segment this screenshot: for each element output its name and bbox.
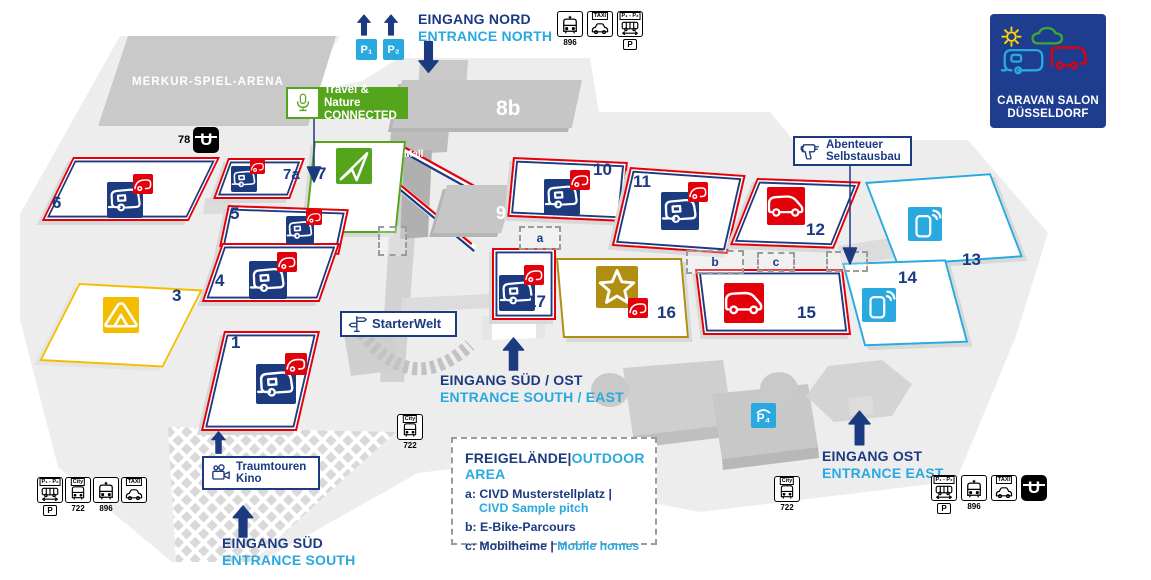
legend-item-b: b: E-Bike-Parcours: [465, 520, 655, 534]
entrance-south-de: EINGANG SÜD: [222, 535, 355, 552]
hall-13-label: 13: [962, 250, 981, 270]
microphone-icon: [288, 89, 318, 117]
entrance-east-arrow: [848, 409, 871, 447]
hall-12-label: 12: [806, 220, 825, 240]
bus-icon: [93, 477, 119, 503]
transit-taxi-north: TAXI: [586, 11, 614, 37]
starterwelt-badge: StarterWelt: [340, 311, 457, 337]
abenteuer-line1: Abenteuer: [826, 139, 901, 152]
u78-line-number: 78: [178, 134, 190, 146]
city-bus-icon: City: [397, 414, 423, 440]
transit-bus-896-sw: 896: [92, 477, 120, 513]
city-tag: City: [71, 478, 85, 486]
hall-12-icons: [767, 187, 805, 225]
entrance-east-en: ENTRANCE EAST: [822, 465, 944, 482]
entrance-south-en: ENTRANCE SOUTH: [222, 552, 355, 569]
hall-7-icons: [336, 148, 372, 184]
entrance-north-de: EINGANG NORD: [418, 11, 552, 28]
taxi-tag: TAXI: [592, 12, 608, 20]
travel-nature-text: Travel & Nature CONNECTED: [318, 89, 406, 117]
hall-16-label: 16: [657, 303, 676, 323]
video-camera-icon: [209, 463, 233, 483]
motorhome-icon: [628, 298, 648, 318]
outdoor-area-c: c: [757, 252, 795, 272]
legend-item-a: a: CIVD Musterstellplatz | CIVD Sample p…: [465, 487, 655, 515]
logo-line1: CARAVAN SALON: [997, 95, 1099, 108]
motorhome-icon: [277, 252, 297, 272]
smartphone-icon: [862, 288, 896, 322]
travel-nature-badge: Travel & Nature CONNECTED: [286, 87, 408, 119]
motorhome-outline-icon: [1052, 48, 1086, 69]
transit-bus-896-north: 896: [556, 11, 584, 47]
shuttle-p-label: P: [43, 505, 56, 516]
marker-a-label: a: [537, 231, 544, 245]
entrance-southeast-label: EINGANG SÜD / OST ENTRANCE SOUTH / EAST: [440, 372, 624, 406]
hall-11-label: 11: [633, 172, 651, 192]
parking-p2: P₂: [383, 39, 404, 60]
hall-10-icons: [544, 172, 594, 218]
navigation-arrow-icon: [336, 148, 372, 184]
city-bus-icon: City: [65, 477, 91, 503]
legend-c-key: c:: [465, 539, 476, 553]
logo-text: CARAVAN SALON DÜSSELDORF: [997, 95, 1099, 121]
shuttle-p-label: P: [623, 39, 636, 50]
kino-text: Traumtouren Kino: [236, 461, 306, 486]
caravan-outline-icon: [1002, 50, 1042, 73]
legend-a-de: CIVD Musterstellplatz |: [479, 487, 612, 501]
hall-3-icons: [103, 297, 139, 333]
signpost-icon: [347, 314, 369, 334]
bus-route-label: 896: [99, 504, 112, 513]
outdoor-area-b: b: [686, 250, 744, 274]
legend-item-c: c: Mobilheime | Mobile homes: [465, 539, 655, 553]
kino-arrow: [211, 430, 226, 455]
transit-shuttle-se: P₁ - P₂ P: [930, 475, 958, 514]
entrance-east-label: EINGANG OST ENTRANCE EAST: [822, 448, 944, 482]
entrance-southeast-arrow: [502, 337, 525, 371]
taxi-icon: TAXI: [991, 475, 1017, 501]
parking-p1: P₁: [356, 39, 377, 60]
taxi-icon: TAXI: [121, 477, 147, 503]
entrance-south-arrow: [231, 505, 255, 538]
hall-1-label: 1: [231, 333, 240, 353]
drill-icon: [800, 141, 823, 161]
shuttle-bus-icon: P₁ - P₂: [37, 477, 63, 503]
p1-label: P₁: [361, 44, 373, 56]
p1-arrow: [357, 13, 371, 37]
hall-10-label: 10: [593, 160, 612, 180]
hall-6-label: 6: [52, 193, 61, 213]
hall-15-label: 15: [797, 303, 816, 323]
hall-4-label: 4: [215, 271, 224, 291]
hall-11-icons: [661, 184, 713, 232]
hall-6-icons: [107, 176, 157, 222]
hall-1-icons: [256, 355, 312, 407]
hall-9-label: 9: [496, 203, 506, 224]
transit-bus-896-se: 896: [960, 475, 988, 511]
caravan-salon-logo: CARAVAN SALON DÜSSELDORF: [990, 14, 1106, 128]
travel-nature-pointer-arrow: [305, 119, 323, 183]
outdoor-area-small: [378, 226, 407, 256]
van-icon: [724, 283, 764, 323]
motorhome-icon: [250, 159, 265, 174]
starterwelt-label: StarterWelt: [372, 318, 441, 331]
legend-a-en: CIVD Sample pitch: [465, 501, 655, 515]
hall-7a-icons: [231, 161, 271, 195]
legend-a-key: a:: [465, 487, 476, 501]
logo-art: [998, 22, 1098, 84]
tent-icon: [103, 297, 139, 333]
hall-17-label: 17: [527, 292, 546, 312]
bus-route-label: 896: [563, 38, 576, 47]
ubahn-icon: U: [193, 127, 219, 153]
marker-b-label: b: [711, 255, 718, 269]
hall-8b-label: 8b: [496, 97, 521, 121]
hall-5-icons: [286, 211, 330, 249]
taxi-icon: TAXI: [587, 11, 613, 37]
caravan-salon-map: MERKUR-SPIEL-ARENA Mall 6 7a 7 8b 9 5 4 …: [0, 0, 1151, 580]
outdoor-area-legend: FREIGELÄNDE|OUTDOOR AREA a: CIVD Musters…: [451, 437, 657, 545]
bus-icon: [961, 475, 987, 501]
abenteuer-line2: Selbstausbau: [826, 151, 901, 164]
motorhome-icon: [570, 170, 590, 190]
hall-3-label: 3: [172, 286, 181, 306]
u-letter: U: [1028, 478, 1040, 498]
bus-route-label: 722: [780, 503, 793, 512]
city-tag: City: [780, 477, 794, 485]
taxi-tag: TAXI: [996, 476, 1012, 484]
legend-b-key: b:: [465, 520, 477, 534]
motorhome-icon: [524, 265, 544, 285]
shuttle-bus-icon: P₁ - P₂: [617, 11, 643, 37]
shuttle-bus-icon: P₁ - P₂: [931, 475, 957, 501]
transit-u78: 78 U: [178, 127, 219, 153]
motorhome-icon: [133, 174, 153, 194]
entrance-southeast-en: ENTRANCE SOUTH / EAST: [440, 389, 624, 406]
parking-p4: P₄: [751, 403, 776, 428]
legend-title: FREIGELÄNDE|OUTDOOR AREA: [465, 450, 655, 482]
p4-label: P₄: [757, 413, 771, 424]
entrance-north-arrow: [418, 40, 439, 74]
travel-nature-line2: CONNECTED: [324, 110, 406, 123]
taxi-tag: TAXI: [126, 478, 142, 486]
legend-c-en: Mobile homes: [557, 539, 639, 553]
city-bus-icon: City: [774, 476, 800, 502]
legend-c-de: Mobilheime |: [479, 539, 554, 553]
marker-c-label: c: [773, 255, 780, 269]
entrance-south-label: EINGANG SÜD ENTRANCE SOUTH: [222, 535, 355, 569]
hall-15-icons: [724, 283, 764, 323]
transit-city-722-east: City 722: [773, 476, 801, 512]
hall-7a-label: 7a: [283, 166, 300, 183]
bus-route-label: 722: [71, 504, 84, 513]
entrance-east-de: EINGANG OST: [822, 448, 944, 465]
transit-taxi-sw: TAXI: [120, 477, 148, 503]
shuttle-p-label: P: [937, 503, 950, 514]
travel-nature-line1: Travel & Nature: [324, 84, 406, 110]
transit-taxi-se: TAXI: [990, 475, 1018, 501]
arena-label: MERKUR-SPIEL-ARENA: [112, 76, 304, 88]
city-tag: City: [403, 415, 417, 423]
hall-14-icons: [862, 288, 896, 322]
motorhome-icon: [306, 209, 322, 225]
hall-13-icons: [908, 207, 942, 241]
abenteuer-pointer-arrow: [841, 163, 859, 265]
p2-arrow: [384, 13, 398, 37]
bus-route-label: 722: [403, 441, 416, 450]
sun-icon: [1002, 28, 1020, 46]
transit-shuttle-north: P₁ - P₂ P: [616, 11, 644, 50]
motorhome-icon: [285, 353, 307, 375]
shuttle-tag: P₁ - P₂: [40, 478, 61, 486]
outdoor-area-a: a: [519, 226, 561, 250]
legend-b-de: E-Bike-Parcours: [480, 520, 576, 534]
kino-line1: Traumtouren: [236, 461, 306, 474]
shuttle-tag: P₁ - P₂: [620, 12, 641, 20]
ubahn-icon: U: [1021, 475, 1047, 501]
entrance-north-label: EINGANG NORD ENTRANCE NORTH: [418, 11, 552, 45]
mall-label: Mall: [404, 149, 423, 160]
hall-14-label: 14: [898, 268, 917, 288]
transit-ubahn-se: U: [1020, 475, 1048, 501]
u-letter: U: [200, 130, 212, 150]
bus-route-label: 896: [967, 502, 980, 511]
transit-city-722-sw2: City 722: [64, 477, 92, 513]
bus-icon: [557, 11, 583, 37]
entrance-north-en: ENTRANCE NORTH: [418, 28, 552, 45]
logo-line2: DÜSSELDORF: [997, 108, 1099, 121]
abenteuer-selbstausbau-badge: Abenteuer Selbstausbau: [793, 136, 912, 166]
hall-5-label: 5: [230, 204, 239, 224]
legend-title-de: FREIGELÄNDE: [465, 450, 568, 466]
hall-8b[interactable]: [392, 80, 582, 128]
entrance-southeast-de: EINGANG SÜD / OST: [440, 372, 624, 389]
p2-label: P₂: [387, 44, 399, 56]
van-icon: [767, 187, 805, 225]
hall-15[interactable]: [695, 269, 851, 335]
kino-line2: Kino: [236, 473, 306, 486]
abenteuer-text: Abenteuer Selbstausbau: [826, 139, 901, 164]
traumtouren-kino-badge: Traumtouren Kino: [202, 456, 320, 490]
hall-16-icons: [596, 266, 654, 318]
hall-4-icons: [249, 254, 301, 302]
shuttle-tag: P₁ - P₂: [934, 476, 955, 484]
cloud-icon: [1033, 28, 1062, 43]
motorhome-icon: [688, 182, 708, 202]
transit-shuttle-sw: P₁ - P₂ P: [36, 477, 64, 516]
transit-city-722-sw: City 722: [396, 414, 424, 450]
smartphone-icon: [908, 207, 942, 241]
